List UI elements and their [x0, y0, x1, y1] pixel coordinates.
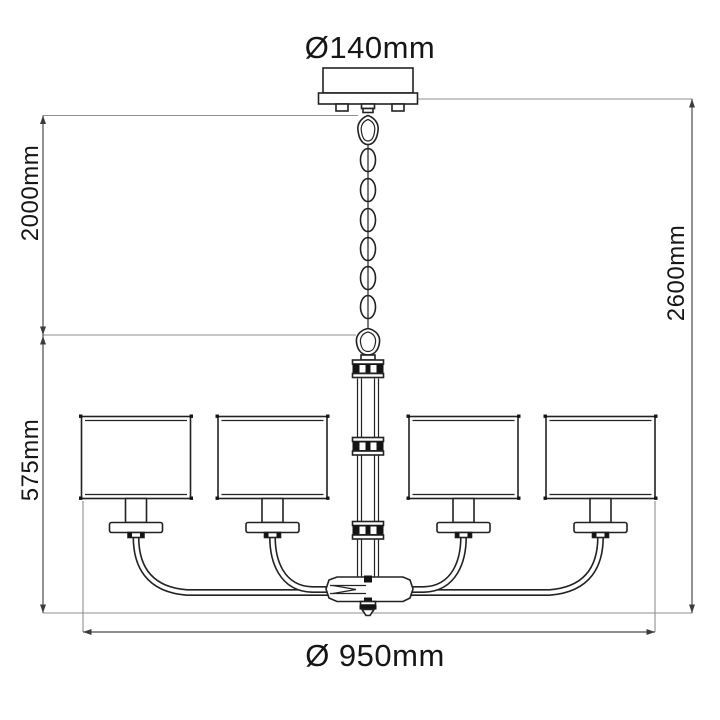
- dim-fixture-height: 575mm: [17, 335, 46, 613]
- lamp-arm-4: [394, 537, 601, 593]
- dim-suspension-height: 2000mm: [17, 116, 358, 336]
- column-collar-middle: [353, 438, 384, 456]
- ceiling-canopy: [319, 68, 418, 113]
- lamp-shade-2: [216, 415, 330, 538]
- suspension-height-label: 2000mm: [17, 145, 44, 241]
- center-hub: [326, 576, 413, 605]
- fixture-height-label: 575mm: [17, 419, 44, 502]
- canopy-diameter-label: Ø140mm: [305, 30, 435, 65]
- total-height-label: 2600mm: [663, 225, 690, 321]
- column-collar-bottom: [353, 522, 384, 540]
- lamp-shade-3: [407, 415, 521, 538]
- column-top-loop: [353, 329, 384, 378]
- technical-drawing-canvas: 2000mm 575mm 2600mm Ø 950mm Ø140mm: [0, 0, 720, 720]
- lamp-shade-4: [544, 415, 658, 538]
- fixture-diameter-label: Ø 950mm: [305, 638, 445, 673]
- chandelier-dimension-drawing: 2000mm 575mm 2600mm Ø 950mm Ø140mm: [0, 0, 720, 720]
- lamp-arm-1: [136, 537, 342, 593]
- center-column: [353, 379, 384, 578]
- lamp-shade-1: [79, 415, 193, 538]
